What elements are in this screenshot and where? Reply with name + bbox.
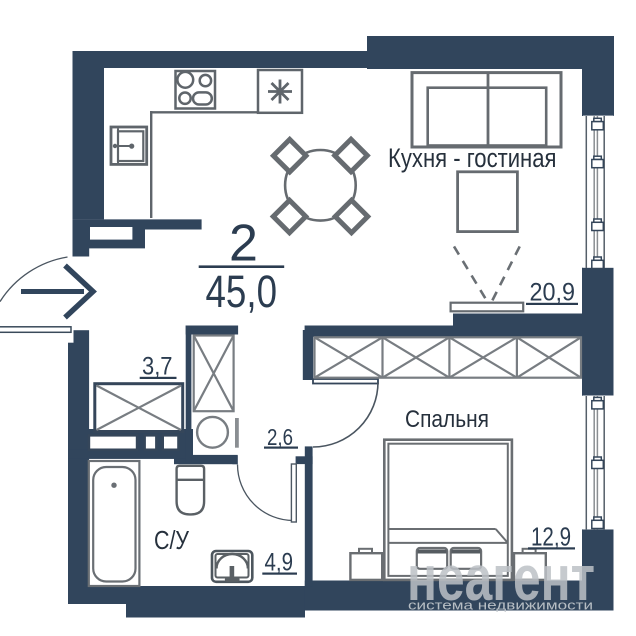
svg-text:Кухня - гостиная: Кухня - гостиная (388, 143, 557, 173)
svg-text:4,9: 4,9 (265, 549, 294, 577)
svg-text:С/У: С/У (154, 525, 189, 555)
svg-text:45,0: 45,0 (206, 266, 278, 317)
svg-text:2,6: 2,6 (267, 424, 293, 450)
svg-text:3,7: 3,7 (142, 353, 173, 381)
svg-text:2: 2 (229, 215, 258, 273)
svg-text:система недвижимости: система недвижимости (408, 599, 593, 613)
svg-text:Спальня: Спальня (405, 406, 489, 433)
svg-text:20,9: 20,9 (530, 280, 576, 307)
